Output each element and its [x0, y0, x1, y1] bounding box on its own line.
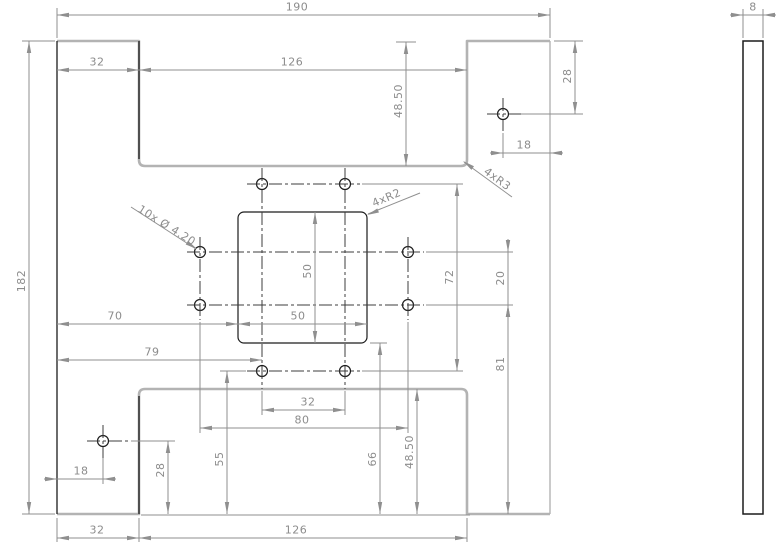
dim-bottom-tab-width: 32 — [57, 524, 139, 541]
dim-arrow — [415, 389, 419, 401]
dim-pocket-offset-left: 70 — [57, 310, 238, 327]
dim-bottom-hole-offset-left: 18 — [44, 465, 116, 482]
dim-overall-width: 190 — [57, 1, 550, 18]
dim-arrow — [57, 68, 69, 72]
dim-arrow — [57, 358, 69, 362]
dim-arrow — [313, 212, 317, 224]
dim-arrow — [731, 13, 743, 17]
dim-top-hole-offset-top-label: 28 — [561, 69, 574, 84]
dim-bottom-notch-depth: 48.50 — [403, 389, 419, 514]
dim-hole-rows-spacing-label: 72 — [443, 270, 456, 285]
dim-arrow — [333, 408, 345, 412]
dim-bottom-row-offset-bottom-label: 55 — [213, 452, 226, 467]
dim-arrow — [573, 41, 577, 53]
dim-hole-columns-spacing-label: 80 — [295, 414, 310, 427]
outer-fillet-callout: 4xR3 — [481, 165, 513, 193]
dim-arrow — [57, 13, 69, 17]
dim-arrow — [45, 477, 57, 481]
dim-arrow — [225, 502, 229, 514]
dim-arrow — [27, 41, 31, 53]
dim-arrow — [455, 68, 467, 72]
dim-arrow — [238, 322, 250, 326]
pocket-fillet-leader-arrow — [366, 208, 379, 217]
dim-hole-column-offset-left: 79 — [57, 346, 262, 363]
dim-top-notch-width-label: 126 — [281, 56, 304, 69]
dim-arrow — [103, 477, 115, 481]
dim-arrow — [313, 331, 317, 343]
dim-top-tab-width: 32 — [57, 56, 139, 73]
dim-arrow — [550, 151, 562, 155]
dim-arrow — [455, 359, 459, 371]
dim-hole-pair-spacing: 32 — [262, 396, 345, 413]
technical-drawing: 10x Ø 4.20 4xR3 4xR2 19083212618248.5028… — [0, 0, 780, 542]
dim-arrow — [200, 426, 212, 430]
dim-arrow — [262, 408, 274, 412]
dim-pocket-height: 50 — [301, 212, 317, 343]
dim-arrow — [506, 502, 510, 514]
dim-overall-width-label: 190 — [286, 1, 309, 14]
dim-arrow — [127, 536, 139, 540]
dim-pocket-height-label: 50 — [301, 264, 314, 279]
dim-bottom-row-offset-bottom: 55 — [213, 371, 229, 514]
dim-arrow — [378, 343, 382, 355]
dim-arrow — [573, 102, 577, 114]
dim-pocket-offset-bottom-label: 66 — [366, 452, 379, 467]
dim-arrow — [763, 13, 775, 17]
dim-arrow — [538, 13, 550, 17]
dim-arrow — [166, 502, 170, 514]
dim-arrow — [127, 68, 139, 72]
drawing-canvas: 10x Ø 4.20 4xR3 4xR2 19083212618248.5028… — [0, 0, 780, 542]
dim-arrow — [355, 322, 367, 326]
dim-overall-height-label: 182 — [15, 270, 28, 293]
dim-bottom-notch-width-label: 126 — [285, 524, 308, 537]
dim-arrow — [455, 184, 459, 196]
dim-arrow — [404, 42, 408, 54]
dim-top-hole-offset-right: 18 — [490, 139, 563, 156]
dim-top-notch-depth: 48.50 — [392, 42, 408, 166]
holes-callout: 10x Ø 4.20 — [135, 203, 198, 249]
dim-side-hole-offset-bottom-label: 81 — [494, 357, 507, 372]
dim-bottom-hole-offset-bottom: 28 — [154, 441, 170, 514]
dim-arrow — [57, 322, 69, 326]
dim-hole-pair-spacing-label: 32 — [301, 396, 316, 409]
dim-top-hole-offset-top: 28 — [561, 41, 577, 114]
dim-bottom-tab-width-label: 32 — [90, 524, 105, 537]
dimensions: 19083212618248.5028187220817050507932805… — [15, 1, 776, 541]
dim-arrow — [139, 68, 151, 72]
dim-pocket-offset-left-label: 70 — [108, 310, 123, 323]
dim-side-hole-offset-bottom: 81 — [494, 305, 510, 514]
front-outline-top — [57, 41, 550, 166]
dim-arrow — [166, 441, 170, 453]
leaders: 10x Ø 4.20 4xR3 4xR2 — [131, 159, 513, 251]
dim-arrow — [378, 502, 382, 514]
dim-hole-columns-spacing: 80 — [200, 414, 408, 431]
side-view-outline — [743, 41, 763, 514]
dim-pocket-width-label: 50 — [291, 310, 306, 323]
dim-arrow — [139, 536, 151, 540]
side-view — [743, 41, 763, 514]
dim-arrow — [455, 536, 467, 540]
dim-bottom-hole-offset-left-label: 18 — [74, 465, 89, 478]
dim-side-holes-spacing-label: 20 — [494, 271, 507, 286]
dim-arrow — [491, 151, 503, 155]
dim-arrow — [506, 305, 510, 317]
dim-hole-rows-spacing: 72 — [443, 184, 459, 371]
dim-top-tab-width-label: 32 — [90, 56, 105, 69]
dim-bottom-notch-depth-label: 48.50 — [403, 435, 416, 469]
dim-pocket-width: 50 — [238, 310, 367, 327]
dim-overall-height: 182 — [15, 41, 31, 514]
dim-arrow — [27, 502, 31, 514]
dim-arrow — [404, 154, 408, 166]
dim-top-notch-width: 126 — [139, 56, 467, 73]
dim-bottom-hole-offset-bottom-label: 28 — [154, 463, 167, 478]
dim-arrow — [506, 240, 510, 252]
dim-hole-column-offset-left-label: 79 — [145, 346, 160, 359]
dim-arrow — [225, 371, 229, 383]
dim-thickness-label: 8 — [749, 1, 757, 14]
dim-arrow — [57, 536, 69, 540]
dim-top-notch-depth-label: 48.50 — [392, 84, 405, 118]
dim-bottom-notch-width: 126 — [139, 524, 467, 541]
dim-arrow — [396, 426, 408, 430]
dim-arrow — [250, 358, 262, 362]
dim-thickness: 8 — [730, 1, 776, 18]
dim-arrow — [226, 322, 238, 326]
dim-arrow — [415, 502, 419, 514]
dim-top-hole-offset-right-label: 18 — [517, 139, 532, 152]
